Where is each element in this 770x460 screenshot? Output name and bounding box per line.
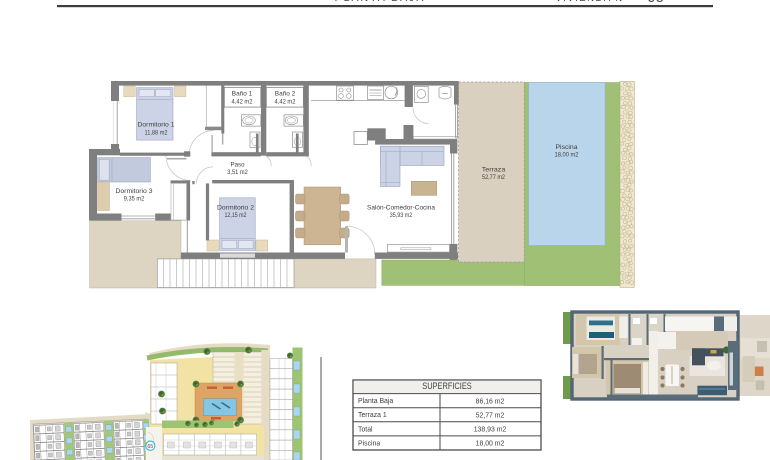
svg-text:Salón-Comedor-Cocina: Salón-Comedor-Cocina xyxy=(367,204,435,211)
svg-text:PLANTA BAJA: PLANTA BAJA xyxy=(335,0,426,4)
svg-text:65: 65 xyxy=(647,0,665,5)
svg-text:3,51 m2: 3,51 m2 xyxy=(227,169,248,176)
svg-text:VIVIENDA Nº: VIVIENDA Nº xyxy=(555,0,628,4)
svg-text:138,93 m2: 138,93 m2 xyxy=(474,427,507,434)
svg-text:Terraza 1: Terraza 1 xyxy=(358,412,387,419)
svg-text:SUPERFICIES: SUPERFICIES xyxy=(422,381,472,391)
svg-text:4,42 m2: 4,42 m2 xyxy=(275,99,296,106)
svg-text:Dormitorio 2: Dormitorio 2 xyxy=(217,205,254,212)
svg-text:Terraza: Terraza xyxy=(482,167,506,174)
svg-text:Piscina: Piscina xyxy=(556,144,578,151)
svg-text:Paso: Paso xyxy=(231,162,245,169)
svg-text:4,42 m2: 4,42 m2 xyxy=(232,99,253,106)
svg-text:Piscina: Piscina xyxy=(358,440,380,447)
svg-text:18,00 m2: 18,00 m2 xyxy=(476,441,505,448)
svg-text:9,35 m2: 9,35 m2 xyxy=(124,196,145,203)
svg-text:11,88 m2: 11,88 m2 xyxy=(145,130,168,137)
svg-text:Planta Baja: Planta Baja xyxy=(358,398,393,405)
svg-text:12,15 m2: 12,15 m2 xyxy=(225,212,247,219)
svg-text:Baño 2: Baño 2 xyxy=(275,91,296,98)
svg-text:35,93 m2: 35,93 m2 xyxy=(390,212,413,219)
svg-text:Total: Total xyxy=(358,426,373,433)
svg-text:52,77 m2: 52,77 m2 xyxy=(476,412,505,419)
svg-text:65: 65 xyxy=(147,444,153,450)
svg-text:18,00 m2: 18,00 m2 xyxy=(555,152,579,159)
svg-text:Baño 1: Baño 1 xyxy=(232,91,253,98)
svg-text:Dormitorio 3: Dormitorio 3 xyxy=(116,188,153,195)
svg-text:Dormitorio 1: Dormitorio 1 xyxy=(138,122,175,129)
svg-text:52,77 m2: 52,77 m2 xyxy=(482,174,505,181)
svg-text:86,16 m2: 86,16 m2 xyxy=(476,398,505,405)
